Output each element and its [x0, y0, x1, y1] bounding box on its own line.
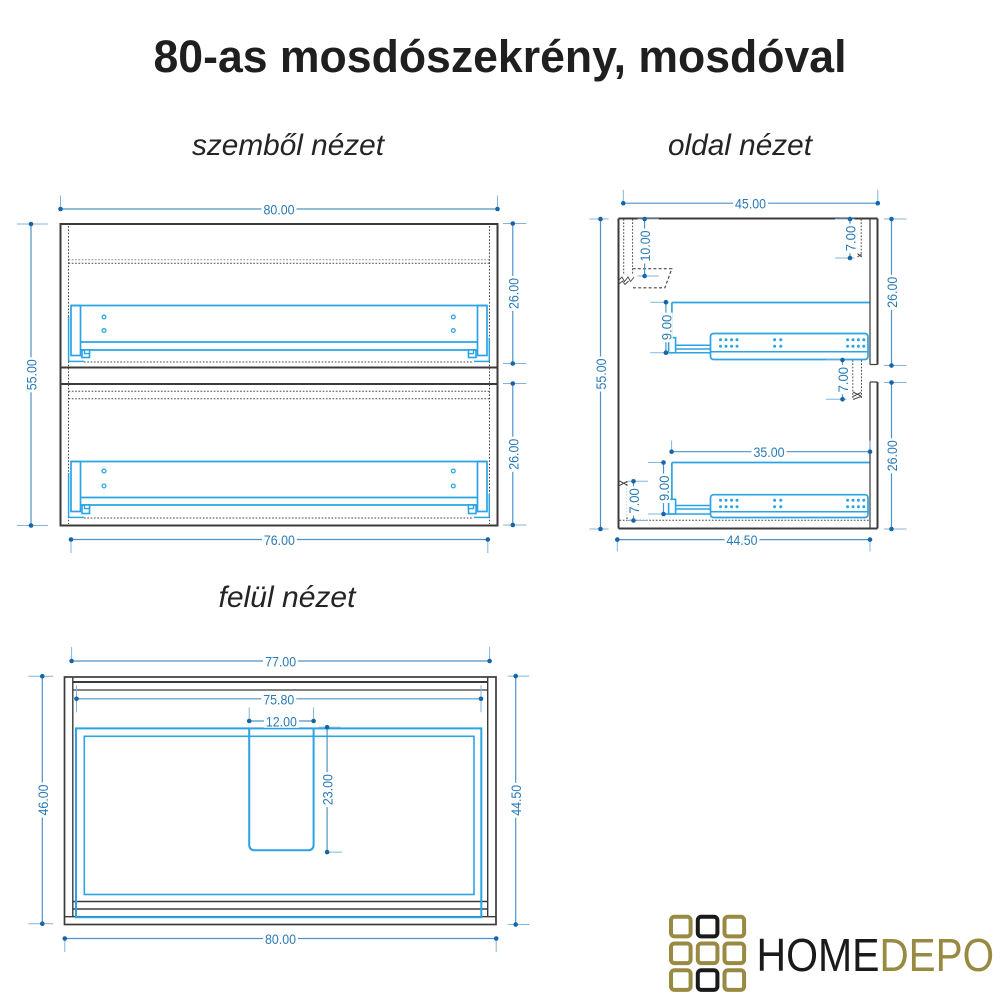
svg-text:szemből nézet: szemből nézet [192, 129, 386, 162]
svg-text:HOME: HOME [757, 929, 880, 981]
svg-text:26.00: 26.00 [505, 439, 521, 470]
svg-text:44.50: 44.50 [727, 532, 758, 548]
svg-text:75.80: 75.80 [263, 691, 294, 707]
svg-text:felül nézet: felül nézet [219, 581, 358, 614]
svg-text:7.00: 7.00 [835, 367, 851, 393]
svg-text:23.00: 23.00 [320, 774, 336, 805]
svg-text:7.00: 7.00 [843, 226, 859, 252]
svg-text:55.00: 55.00 [24, 359, 40, 390]
svg-text:80-as mosdószekrény, mosdóval: 80-as mosdószekrény, mosdóval [154, 31, 847, 82]
svg-text:45.00: 45.00 [735, 196, 766, 212]
svg-text:9.00: 9.00 [656, 475, 672, 501]
svg-text:10.00: 10.00 [637, 230, 653, 261]
svg-text:44.50: 44.50 [508, 785, 524, 816]
svg-text:26.00: 26.00 [884, 277, 900, 308]
svg-text:35.00: 35.00 [754, 444, 785, 460]
svg-text:DEPO: DEPO [880, 929, 995, 981]
svg-text:9.00: 9.00 [658, 315, 674, 341]
svg-text:oldal nézet: oldal nézet [668, 129, 814, 162]
svg-text:12.00: 12.00 [266, 714, 297, 730]
svg-text:80.00: 80.00 [264, 202, 295, 218]
svg-text:7.00: 7.00 [626, 488, 642, 514]
svg-text:77.00: 77.00 [265, 654, 296, 670]
svg-text:55.00: 55.00 [593, 358, 609, 389]
svg-text:26.00: 26.00 [505, 278, 521, 309]
svg-text:26.00: 26.00 [884, 440, 900, 471]
svg-text:46.00: 46.00 [35, 784, 51, 815]
svg-text:76.00: 76.00 [264, 532, 295, 548]
svg-text:80.00: 80.00 [265, 931, 296, 947]
